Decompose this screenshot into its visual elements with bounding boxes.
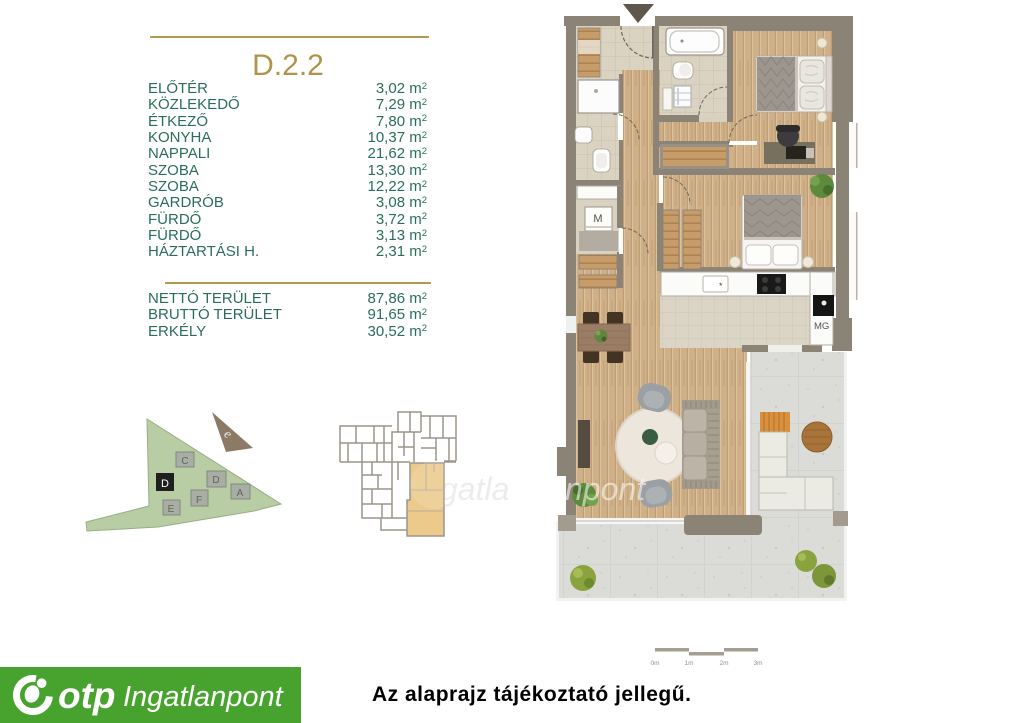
svg-text:D: D	[161, 478, 169, 490]
svg-text:npont: npont	[565, 471, 646, 507]
svg-text:0m: 0m	[650, 660, 659, 667]
svg-text:C: C	[181, 456, 188, 467]
svg-text:F: F	[196, 495, 202, 506]
svg-text:E: E	[168, 504, 175, 515]
svg-text:1m: 1m	[684, 660, 693, 667]
svg-text:3m: 3m	[753, 660, 762, 667]
svg-text:M: M	[593, 213, 602, 225]
svg-text:2m: 2m	[719, 660, 728, 667]
svg-text:otp: otp	[58, 675, 116, 716]
svg-text:D: D	[212, 475, 219, 486]
svg-text:Ingatlanpont: Ingatlanpont	[123, 681, 285, 713]
svg-text:*: *	[719, 281, 723, 291]
svg-text:A: A	[237, 488, 244, 499]
svg-text:MG: MG	[814, 321, 829, 332]
